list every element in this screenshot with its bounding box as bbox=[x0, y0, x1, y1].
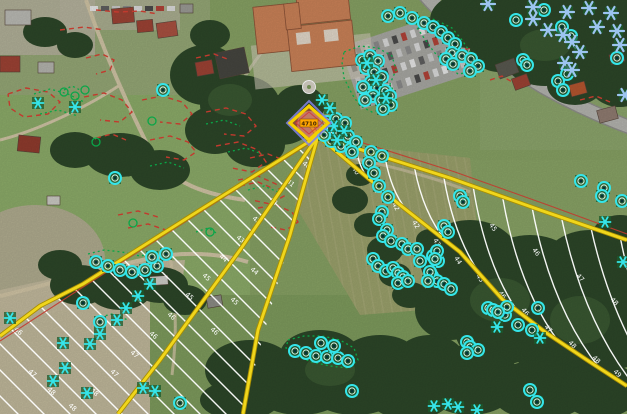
tree-circle-symbol[interactable] bbox=[289, 345, 301, 357]
conifer-star-symbol[interactable] bbox=[618, 89, 627, 101]
map-canvas[interactable]: 4041424243444545464647474848484746454446… bbox=[0, 0, 627, 414]
conifer-star-symbol[interactable] bbox=[481, 0, 495, 10]
conifer-star-symbol[interactable] bbox=[452, 401, 464, 413]
marker-label: 4710 bbox=[301, 122, 316, 128]
tree-circle-symbol[interactable] bbox=[157, 84, 169, 96]
tree-circle-symbol[interactable] bbox=[373, 180, 385, 192]
conifer-star-symbol[interactable] bbox=[149, 385, 161, 397]
conifer-star-symbol[interactable] bbox=[590, 21, 604, 33]
tree-circle-symbol[interactable] bbox=[557, 84, 569, 96]
tree-circle-symbol[interactable] bbox=[445, 283, 457, 295]
tree-circle-symbol[interactable] bbox=[457, 196, 469, 208]
tree-circle-symbol[interactable] bbox=[114, 264, 126, 276]
conifer-star-symbol[interactable] bbox=[573, 46, 587, 58]
tree-circle-symbol[interactable] bbox=[411, 243, 423, 255]
tree-circle-symbol[interactable] bbox=[538, 4, 550, 16]
tree-circle-symbol[interactable] bbox=[442, 226, 454, 238]
conifer-star-symbol[interactable] bbox=[59, 362, 71, 374]
tree-circle-symbol[interactable] bbox=[146, 251, 158, 263]
tree-circle-symbol[interactable] bbox=[346, 146, 358, 158]
conifer-star-symbol[interactable] bbox=[560, 6, 574, 18]
conifer-star-symbol[interactable] bbox=[120, 302, 132, 314]
conifer-star-symbol[interactable] bbox=[4, 312, 16, 324]
conifer-star-symbol[interactable] bbox=[380, 92, 392, 104]
conifer-star-symbol[interactable] bbox=[132, 290, 144, 302]
conifer-star-symbol[interactable] bbox=[613, 39, 627, 51]
tree-circle-symbol[interactable] bbox=[174, 397, 186, 409]
conifer-star-symbol[interactable] bbox=[599, 216, 611, 228]
tree-circle-symbol[interactable] bbox=[414, 255, 426, 267]
tree-circle-symbol[interactable] bbox=[90, 256, 102, 268]
conifer-star-symbol[interactable] bbox=[69, 101, 81, 113]
tree-circle-symbol[interactable] bbox=[422, 275, 434, 287]
conifer-star-symbol[interactable] bbox=[428, 400, 440, 412]
conifer-star-symbol[interactable] bbox=[111, 314, 123, 326]
tree-circle-symbol[interactable] bbox=[521, 59, 533, 71]
tree-circle-symbol[interactable] bbox=[377, 103, 389, 115]
conifer-star-symbol[interactable] bbox=[32, 97, 44, 109]
conifer-star-symbol[interactable] bbox=[526, 1, 540, 13]
conifer-star-symbol[interactable] bbox=[471, 404, 483, 414]
tree-circle-symbol[interactable] bbox=[402, 275, 414, 287]
tree-circle-symbol[interactable] bbox=[531, 396, 543, 408]
conifer-star-symbol[interactable] bbox=[331, 134, 343, 146]
tree-circle-symbol[interactable] bbox=[512, 319, 524, 331]
conifer-star-symbol[interactable] bbox=[610, 25, 624, 37]
tree-circle-symbol[interactable] bbox=[139, 264, 151, 276]
conifer-star-symbol[interactable] bbox=[526, 13, 540, 25]
conifer-star-symbol[interactable] bbox=[324, 102, 336, 114]
tree-circle-symbol[interactable] bbox=[524, 384, 536, 396]
conifer-star-symbol[interactable] bbox=[604, 7, 618, 19]
tree-circle-symbol[interactable] bbox=[510, 14, 522, 26]
tree-circle-symbol[interactable] bbox=[160, 248, 172, 260]
tree-circle-symbol[interactable] bbox=[406, 12, 418, 24]
tree-circle-symbol[interactable] bbox=[368, 167, 380, 179]
tree-circle-symbol[interactable] bbox=[126, 266, 138, 278]
conifer-star-symbol[interactable] bbox=[361, 57, 373, 69]
tree-circle-symbol[interactable] bbox=[616, 195, 627, 207]
tree-circle-symbol[interactable] bbox=[342, 355, 354, 367]
tree-circle-symbol[interactable] bbox=[492, 306, 504, 318]
map-viewport[interactable]: 4041424243444545464647474848484746454446… bbox=[0, 0, 627, 414]
conifer-star-symbol[interactable] bbox=[47, 375, 59, 387]
tree-circle-symbol[interactable] bbox=[373, 213, 385, 225]
tree-circle-symbol[interactable] bbox=[575, 175, 587, 187]
tree-circle-symbol[interactable] bbox=[611, 52, 623, 64]
conifer-star-symbol[interactable] bbox=[57, 337, 69, 349]
conifer-star-symbol[interactable] bbox=[541, 24, 555, 36]
conifer-star-symbol[interactable] bbox=[534, 332, 546, 344]
tree-circle-symbol[interactable] bbox=[382, 10, 394, 22]
tree-circle-symbol[interactable] bbox=[109, 172, 121, 184]
tree-circle-symbol[interactable] bbox=[376, 150, 388, 162]
tree-circle-symbol[interactable] bbox=[596, 190, 608, 202]
conifer-star-symbol[interactable] bbox=[84, 338, 96, 350]
tree-circle-symbol[interactable] bbox=[532, 302, 544, 314]
tree-circle-symbol[interactable] bbox=[461, 347, 473, 359]
tree-circle-symbol[interactable] bbox=[464, 65, 476, 77]
conifer-star-symbol[interactable] bbox=[582, 2, 596, 14]
conifer-star-symbol[interactable] bbox=[370, 74, 382, 86]
tree-circle-symbol[interactable] bbox=[102, 260, 114, 272]
tree-circle-symbol[interactable] bbox=[328, 340, 340, 352]
tree-circle-symbol[interactable] bbox=[315, 337, 327, 349]
conifer-star-symbol[interactable] bbox=[81, 387, 93, 399]
conifer-star-symbol[interactable] bbox=[137, 382, 149, 394]
conifer-star-symbol[interactable] bbox=[617, 256, 627, 268]
conifer-star-symbol[interactable] bbox=[565, 64, 579, 76]
tree-circle-symbol[interactable] bbox=[77, 297, 89, 309]
tree-circle-symbol[interactable] bbox=[359, 94, 371, 106]
tree-circle-symbol[interactable] bbox=[382, 191, 394, 203]
conifer-star-symbol[interactable] bbox=[491, 321, 503, 333]
tree-circle-symbol[interactable] bbox=[346, 385, 358, 397]
tree-circle-symbol[interactable] bbox=[429, 253, 441, 265]
conifer-star-symbol[interactable] bbox=[144, 278, 156, 290]
tree-circle-symbol[interactable] bbox=[94, 316, 106, 328]
tree-circle-symbol[interactable] bbox=[394, 7, 406, 19]
